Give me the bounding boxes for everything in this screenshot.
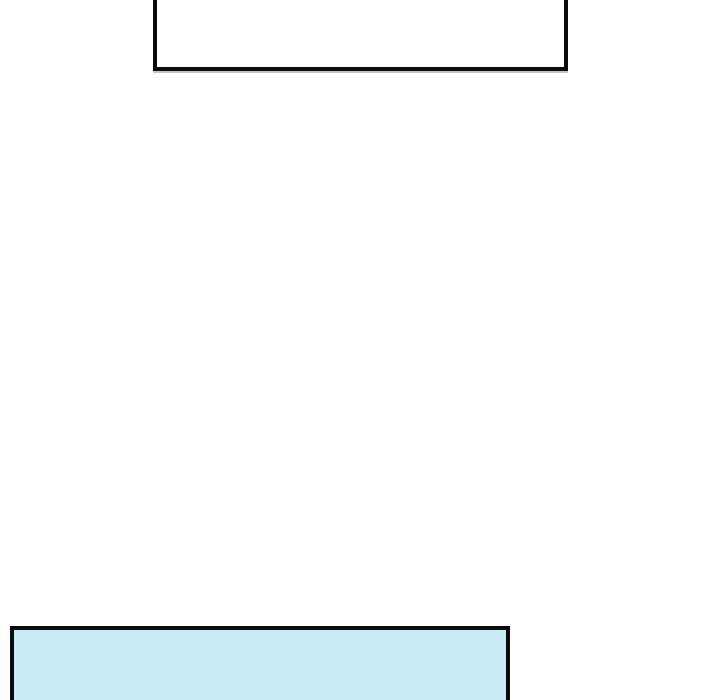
- bottom-panel-blue: [10, 626, 510, 700]
- top-panel-frame: [153, 0, 568, 71]
- comic-page: [0, 0, 720, 700]
